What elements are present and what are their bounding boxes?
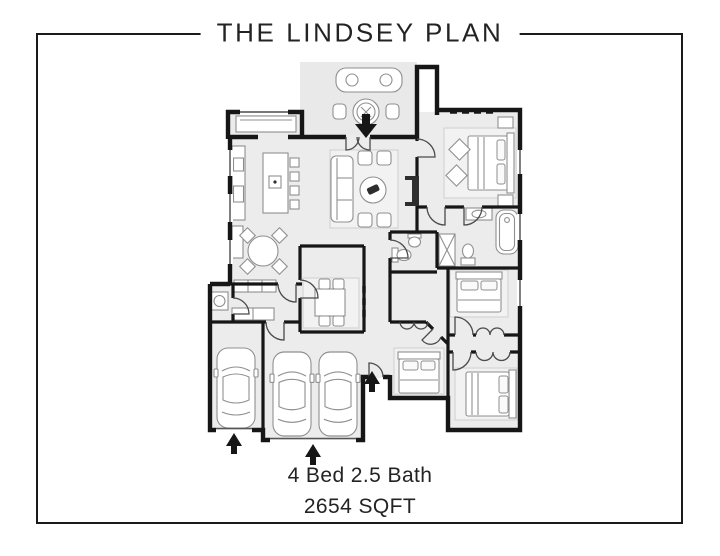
bedroom-3-furniture (398, 352, 440, 393)
bed-bath-text: 4 Bed 2.5 Bath (0, 460, 720, 491)
pillow (403, 361, 418, 370)
bar-stool (290, 200, 299, 209)
dining-chair (333, 279, 344, 289)
sofa (331, 156, 353, 222)
refrigerator (232, 226, 243, 258)
window-seat-bench (236, 116, 296, 132)
kitchen-counter (232, 146, 245, 220)
pillow (499, 396, 508, 413)
bar-stool (290, 172, 299, 181)
car (316, 352, 360, 436)
bar-stool (290, 186, 299, 195)
bed-headboard (509, 370, 516, 418)
floor-plan-sheet: THE LINDSEY PLAN (0, 0, 720, 556)
toilet-bowl (397, 250, 411, 261)
nightstand (498, 117, 513, 128)
pedestal-sink (409, 237, 421, 247)
living-area-furniture (331, 151, 391, 227)
breakfast-table (248, 236, 278, 266)
bed-headboard (456, 272, 502, 279)
bar-stool (290, 158, 299, 167)
accent-chair (377, 151, 391, 165)
outdoor-chair (333, 104, 346, 119)
accent-chair (358, 151, 372, 165)
outdoor-chair (386, 104, 399, 119)
hallway (363, 232, 390, 378)
dining-chair (319, 316, 330, 326)
pillow (421, 361, 435, 370)
accent-chair (377, 213, 391, 227)
garage-cars (214, 348, 360, 436)
dining-chair (319, 279, 330, 289)
dining-chair (333, 316, 344, 326)
pillow (499, 376, 508, 393)
dining-table (315, 289, 345, 316)
corridor (390, 272, 448, 322)
bedroom-2-furniture (456, 272, 502, 312)
bed-headboard (398, 352, 440, 359)
pillow (461, 281, 478, 290)
car (270, 352, 314, 436)
dining-room-furniture (315, 279, 345, 326)
sqft-text: 2654 SQFT (0, 491, 720, 522)
plan-specs: 4 Bed 2.5 Bath 2654 SQFT (0, 460, 720, 522)
pillow (497, 140, 505, 160)
island-sink-drain (273, 180, 276, 183)
fireplace-opening (402, 180, 412, 202)
toilet-bowl (463, 244, 474, 258)
accent-chair (358, 213, 372, 227)
toilet-tank (461, 258, 475, 265)
mudroom-cubbies (234, 280, 276, 292)
car (214, 348, 258, 428)
nightstand (498, 195, 513, 206)
pillow (481, 281, 497, 290)
pillow (497, 164, 505, 184)
master-bed-headboard (507, 133, 514, 193)
bedroom-4-furniture (466, 370, 516, 418)
single-garage-arrow-icon (226, 433, 242, 454)
